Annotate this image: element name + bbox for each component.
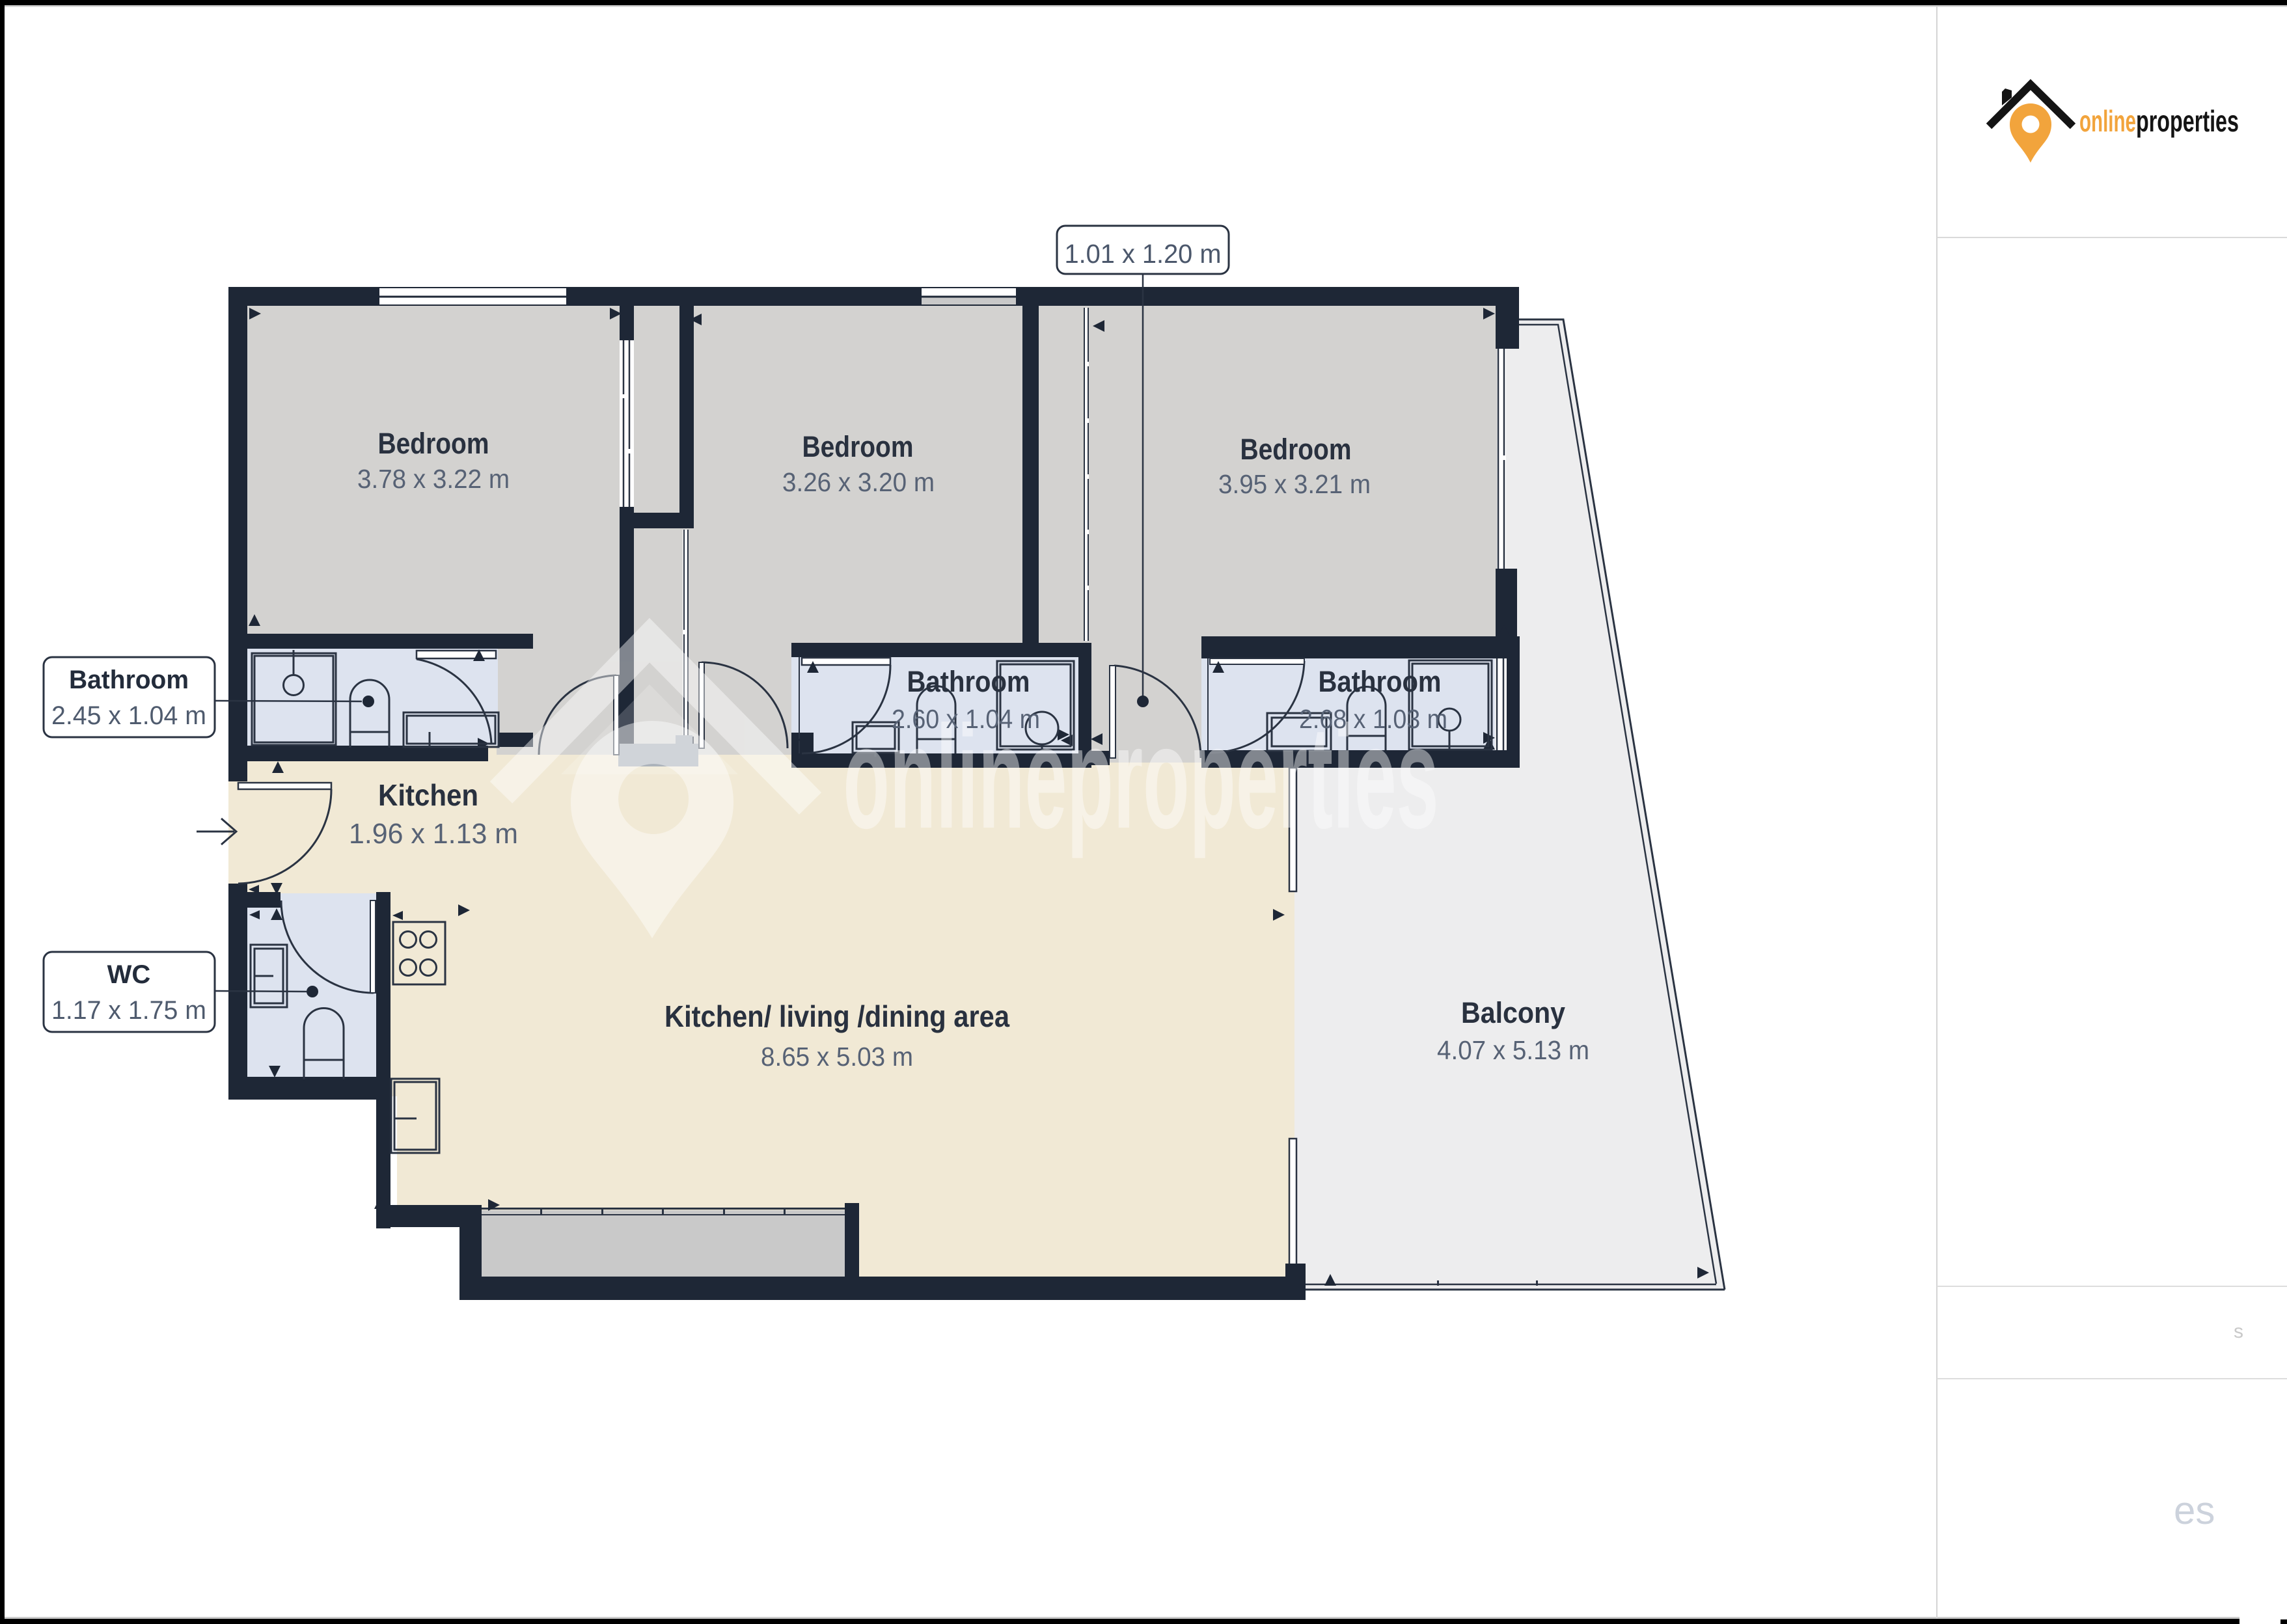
svg-text:1.01 x 1.20 m: 1.01 x 1.20 m	[1065, 239, 1222, 269]
svg-text:Bedroom: Bedroom	[1240, 433, 1352, 466]
svg-text:Kitchen/ living /dining area: Kitchen/ living /dining area	[664, 999, 1009, 1033]
svg-text:2.60 x 1.04 m: 2.60 x 1.04 m	[892, 704, 1040, 734]
svg-text:Bathroom: Bathroom	[1319, 665, 1442, 698]
svg-text:Kitchen: Kitchen	[378, 778, 478, 812]
svg-text:es: es	[2174, 1489, 2215, 1532]
svg-text:1.96 x 1.13 m: 1.96 x 1.13 m	[349, 818, 518, 850]
svg-text:Bedroom: Bedroom	[802, 430, 914, 463]
svg-text:Bathroom: Bathroom	[69, 666, 189, 694]
svg-text:3.95 x 3.21 m: 3.95 x 3.21 m	[1218, 469, 1371, 499]
svg-text:Bedroom: Bedroom	[378, 427, 489, 460]
svg-text:2.68 x 1.03 m: 2.68 x 1.03 m	[1299, 704, 1447, 734]
svg-text:8.65 x 5.03 m: 8.65 x 5.03 m	[761, 1042, 913, 1072]
svg-text:Balcony: Balcony	[1461, 996, 1565, 1029]
svg-text:3.78 x 3.22 m: 3.78 x 3.22 m	[357, 464, 510, 494]
svg-text:1.17 x 1.75 m: 1.17 x 1.75 m	[51, 996, 206, 1025]
svg-text:s: s	[2234, 1321, 2243, 1342]
svg-text:3.26 x 3.20 m: 3.26 x 3.20 m	[782, 467, 935, 497]
svg-text:properties: properties	[2136, 104, 2239, 138]
svg-text:Bathroom: Bathroom	[907, 665, 1030, 698]
svg-text:4.07 x 5.13 m: 4.07 x 5.13 m	[1437, 1035, 1589, 1065]
svg-text:WC: WC	[107, 960, 151, 989]
svg-text:2.45 x 1.04 m: 2.45 x 1.04 m	[51, 701, 206, 730]
svg-text:online: online	[2079, 104, 2136, 138]
